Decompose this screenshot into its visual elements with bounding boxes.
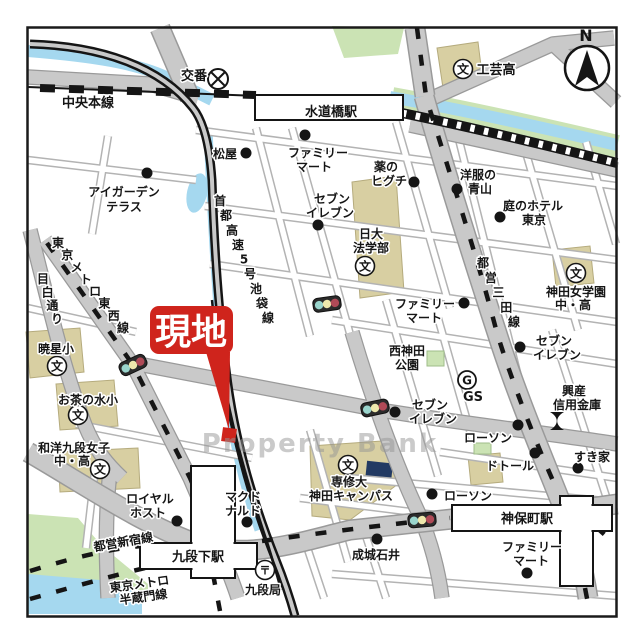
poi-dot-marker xyxy=(459,298,470,309)
tozai-line-label-char: 線 xyxy=(117,320,129,335)
wayo-kudan-1: 和洋九段女子 xyxy=(37,440,110,455)
poi-dot-marker xyxy=(573,463,584,474)
familymart-se-2: マート xyxy=(513,554,549,568)
seijo-ishii-label: 成城石井 xyxy=(352,547,400,562)
poi-dot-marker xyxy=(530,448,541,459)
jimbocho-station-label: 神保町駅 xyxy=(501,511,554,527)
svg-text:文: 文 xyxy=(342,458,355,473)
poi-dot-marker xyxy=(409,177,420,188)
seven-eleven-e-2: イレブン xyxy=(533,347,581,362)
kosan-shinkin-2: 信用金庫 xyxy=(553,397,601,412)
chuo-main-line-label: 中央本線 xyxy=(62,95,115,111)
lawson-c-label: ローソン xyxy=(464,431,512,445)
mcdonalds-2: ナルド xyxy=(225,504,261,518)
matsuya-label: 松屋 xyxy=(213,146,237,161)
post-office-icon: 〒 xyxy=(256,561,275,580)
niwa-hotel-2: 東京 xyxy=(522,212,546,227)
kusuri-higuchi-2: ヒグチ xyxy=(371,173,407,188)
poi-dot-marker xyxy=(172,516,183,527)
svg-text:文: 文 xyxy=(94,462,107,477)
shuto-expressway-label-char: 池 xyxy=(250,281,262,296)
aoyama-suits-2: 青山 xyxy=(468,181,492,196)
nichidai-law-1: 日大 xyxy=(359,226,383,241)
niwa-hotel-1: 庭のホテル xyxy=(503,198,563,213)
kogei-high-label: 工芸高 xyxy=(476,62,515,78)
gas-station-icon: G xyxy=(458,371,476,389)
seven-eleven-c-2: イレブン xyxy=(409,411,457,426)
mita-line-label-char: 田 xyxy=(500,300,512,314)
poi-dot-marker xyxy=(427,489,438,500)
mejiro-dori-label-char: 通 xyxy=(46,298,58,313)
royal-host-2: ホスト xyxy=(130,506,166,520)
sukiya-label: すき家 xyxy=(574,449,611,464)
mita-line-label-char: 線 xyxy=(508,314,520,329)
koban-icon xyxy=(208,69,228,89)
kudanshita-station-label: 九段下駅 xyxy=(171,549,225,565)
mejiro-dori-label-char: 白 xyxy=(42,284,54,299)
poi-dot-marker xyxy=(372,534,383,545)
school-icon: 文 xyxy=(91,460,110,479)
kanda-jogakuen-1: 神田女学園 xyxy=(546,284,606,299)
poi-dot-marker xyxy=(495,212,506,223)
familymart-north-1: ファミリー xyxy=(288,146,348,160)
poi-dot-marker xyxy=(300,130,311,141)
poi-dot-marker xyxy=(241,148,252,159)
wayo-kudan-2: 中・高 xyxy=(54,453,90,468)
gs-label: GS xyxy=(463,390,483,405)
seven-eleven-c-1: セブン xyxy=(412,397,448,412)
igarden-terrace-2: テラス xyxy=(106,200,142,214)
mejiro-dori-label-char: り xyxy=(51,312,63,326)
mejiro-dori-label-char: 目 xyxy=(37,272,49,286)
svg-text:文: 文 xyxy=(570,266,583,281)
familymart-mid-2: マート xyxy=(406,311,442,325)
seven-eleven-nw-2: イレブン xyxy=(306,205,354,220)
mita-line-label-char: 三 xyxy=(492,286,504,300)
svg-text:文: 文 xyxy=(359,259,372,274)
suidobashi-station: 水道橋駅 xyxy=(255,95,403,120)
nishikanda-park-2: 公園 xyxy=(395,358,419,372)
doutor-label: ドトール xyxy=(486,459,534,473)
shuto-expressway-label-char: 都 xyxy=(219,208,232,223)
gyosei-elem-label: 暁星小 xyxy=(38,341,74,356)
svg-text:〒: 〒 xyxy=(260,564,271,577)
poi-dot-marker xyxy=(522,568,533,579)
familymart-north-2: マート xyxy=(296,160,332,174)
familymart-se-1: ファミリー xyxy=(502,540,562,554)
mcdonalds-1: マクド xyxy=(225,490,261,504)
seven-eleven-nw-1: セブン xyxy=(314,191,350,206)
shuto-expressway-label-char: 5 xyxy=(240,253,248,267)
svg-text:G: G xyxy=(462,374,472,388)
shuto-expressway-label-char: 号 xyxy=(244,266,256,281)
school-icon: 文 xyxy=(69,406,88,425)
watermark: Property Bank xyxy=(202,429,438,459)
senshu-univ-2: 神田キャンパス xyxy=(309,488,393,503)
poi-dot-marker xyxy=(515,342,526,353)
school-icon: 文 xyxy=(48,357,67,376)
svg-text:文: 文 xyxy=(457,62,470,77)
poi-dot-marker xyxy=(313,220,324,231)
traffic-light-icon xyxy=(407,512,436,528)
nishikanda-park-square xyxy=(427,351,444,366)
senshu-univ-1: 専修大 xyxy=(331,474,367,489)
poi-dot-marker xyxy=(513,420,524,431)
mita-line-label-char: 営 xyxy=(485,270,497,285)
svg-text:文: 文 xyxy=(51,359,64,374)
shuto-expressway-label-char: 高 xyxy=(226,222,238,237)
suidobashi-station-label: 水道橋駅 xyxy=(305,104,358,120)
aoyama-suits-1: 洋服の xyxy=(460,167,496,182)
kusuri-higuchi-1: 薬の xyxy=(374,159,398,174)
shuto-expressway-label-char: 速 xyxy=(232,237,244,252)
poi-dot-marker xyxy=(452,184,463,195)
area-map-canvas: 水道橋駅九段下駅神保町駅 文文文文文文文G〒 交番中央本線工芸高松屋ファミリーマ… xyxy=(0,0,640,640)
poi-dot-marker xyxy=(142,168,153,179)
kudan-post-label: 九段局 xyxy=(244,582,281,597)
kosan-shinkin-1: 興産 xyxy=(562,383,586,398)
koban-label: 交番 xyxy=(181,68,208,84)
school-icon: 文 xyxy=(567,264,586,283)
map-page: 水道橋駅九段下駅神保町駅 文文文文文文文G〒 交番中央本線工芸高松屋ファミリーマ… xyxy=(0,0,640,640)
kanda-jogakuen-2: 中・高 xyxy=(555,297,591,312)
shuto-expressway-label-char: 線 xyxy=(262,310,274,325)
familymart-mid-1: ファミリー xyxy=(395,297,455,311)
igarden-terrace-1: アイガーデン xyxy=(88,184,159,199)
nichidai-law-2: 法学部 xyxy=(353,240,389,255)
shuto-expressway-label-char: 袋 xyxy=(255,295,269,310)
lawson-s-label: ローソン xyxy=(444,489,492,503)
compass-n-label: N xyxy=(579,26,592,45)
royal-host-1: ロイヤル xyxy=(126,492,174,506)
ochanomizu-elem-label: お茶の水小 xyxy=(58,392,118,407)
poi-dot-marker xyxy=(390,407,401,418)
mita-line-label-char: 都 xyxy=(476,255,489,270)
svg-text:文: 文 xyxy=(72,408,85,423)
shuto-expressway-label-char: 首 xyxy=(214,193,226,208)
school-icon: 文 xyxy=(454,60,473,79)
school-icon: 文 xyxy=(356,257,375,276)
nishikanda-park-1: 西神田 xyxy=(389,343,425,358)
site-callout-text: 現地 xyxy=(155,312,227,353)
poi-dot-marker xyxy=(242,517,253,528)
seven-eleven-e-1: セブン xyxy=(536,333,572,348)
